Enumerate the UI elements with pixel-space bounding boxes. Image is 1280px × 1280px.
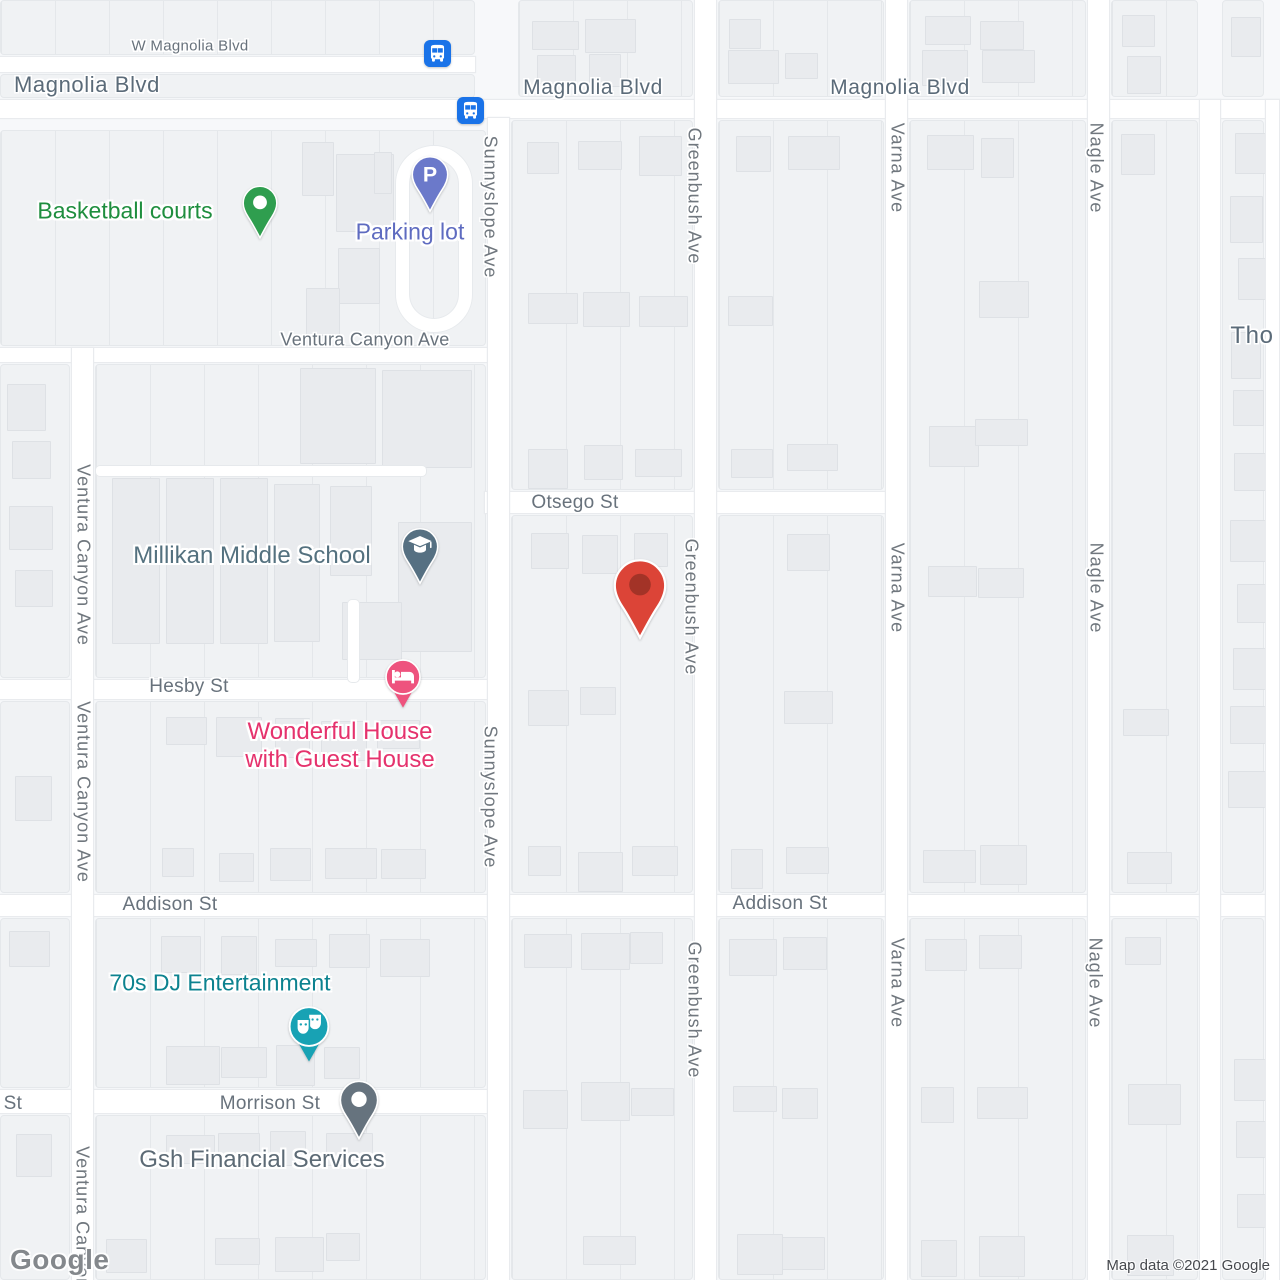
school-pin[interactable] — [401, 527, 439, 585]
street-label-magnolia-blvd-right: Magnolia Blvd — [830, 76, 970, 100]
building-footprint — [302, 142, 334, 196]
building-footprint — [728, 50, 779, 84]
building-footprint — [528, 293, 578, 324]
building-footprint — [927, 135, 975, 171]
building-footprint — [15, 570, 53, 607]
building-footprint — [524, 934, 572, 968]
road-sunnyslope-ave — [488, 118, 509, 1280]
building-footprint — [631, 1088, 674, 1116]
building-footprint — [326, 1233, 360, 1261]
street-label-ventura-canyon-ave-lower: Ventura Canyon Ave — [73, 701, 94, 883]
building-footprint — [979, 1236, 1025, 1276]
building-footprint — [329, 934, 370, 969]
street-label-varna-ave-south: Varna Ave — [887, 938, 908, 1028]
building-footprint — [528, 846, 561, 876]
road-w-magnolia-blvd — [0, 57, 475, 72]
city-block — [1111, 120, 1198, 893]
building-footprint — [585, 19, 636, 53]
building-footprint — [581, 933, 630, 970]
building-footprint — [528, 690, 570, 726]
building-footprint — [733, 1086, 778, 1112]
building-footprint — [782, 1088, 818, 1120]
street-label-otsego-st: Otsego St — [531, 492, 618, 514]
building-footprint — [635, 449, 682, 477]
building-footprint — [578, 141, 622, 170]
building-footprint — [531, 533, 569, 569]
bus-stop-south-icon — [457, 97, 484, 124]
google-logo[interactable]: Google — [10, 1244, 109, 1276]
street-label-ventura-canyon-ave-horizontal: Ventura Canyon Ave — [280, 330, 449, 351]
basketball-courts-pin[interactable] — [242, 184, 278, 240]
building-footprint — [583, 292, 630, 327]
entertainment-pin-icon — [286, 1006, 332, 1063]
building-footprint — [788, 136, 840, 170]
building-footprint — [785, 53, 818, 80]
building-footprint — [1123, 709, 1169, 736]
street-label-addison-st-east: Addison St — [733, 893, 828, 915]
street-label-nagle-ave-south: Nagle Ave — [1085, 938, 1106, 1029]
street-label-sunnyslope-ave-south: Sunnyslope Ave — [480, 726, 501, 869]
road-far-right-street — [1266, 100, 1279, 1280]
building-footprint — [921, 1087, 955, 1123]
building-footprint — [731, 849, 764, 889]
building-footprint — [166, 717, 207, 746]
building-footprint — [15, 776, 51, 821]
building-footprint — [980, 845, 1027, 885]
building-footprint — [9, 506, 54, 549]
building-footprint — [12, 441, 51, 478]
street-label-thornton-partial: Tho — [1230, 322, 1273, 350]
building-footprint — [215, 1238, 259, 1266]
street-label-greenbush-ave-mid: Greenbush Ave — [681, 539, 702, 676]
entertainment-pin[interactable] — [286, 1006, 332, 1063]
street-label-magnolia-blvd-center: Magnolia Blvd — [523, 76, 663, 100]
poi-label-line: Wonderful House — [245, 718, 434, 746]
gsh-pin[interactable] — [339, 1080, 379, 1140]
building-footprint — [982, 50, 1035, 83]
building-footprint — [737, 1234, 783, 1274]
building-footprint — [270, 848, 312, 881]
street-label-greenbush-ave-north: Greenbush Ave — [684, 128, 705, 265]
building-footprint — [1127, 56, 1161, 94]
building-footprint — [580, 687, 616, 715]
building-footprint — [338, 248, 380, 304]
building-footprint — [7, 384, 45, 431]
building-footprint — [16, 1134, 52, 1177]
basketball-courts-pin-icon — [242, 184, 278, 240]
building-footprint — [381, 849, 426, 879]
poi-label-basketball-courts[interactable]: Basketball courts — [37, 198, 212, 225]
street-label-morrison-st: Morrison St — [220, 1093, 320, 1115]
street-label-nagle-ave-mid: Nagle Ave — [1086, 543, 1107, 634]
building-footprint — [736, 136, 771, 173]
destination-pin[interactable] — [613, 557, 667, 641]
building-footprint — [980, 21, 1023, 50]
street-label-addison-st-west: Addison St — [123, 894, 218, 916]
poi-label-line: with Guest House — [245, 746, 434, 774]
building-footprint — [921, 1240, 957, 1277]
building-footprint — [166, 1046, 220, 1085]
building-footprint — [928, 566, 977, 597]
building-footprint — [1236, 1121, 1266, 1159]
building-footprint — [925, 939, 967, 971]
poi-label-line: Parking lot — [356, 219, 465, 246]
poi-label-wonderful-house[interactable]: Wonderful Housewith Guest House — [245, 718, 434, 774]
road-right-street — [1200, 100, 1220, 1280]
building-footprint — [1234, 1059, 1268, 1101]
building-footprint — [382, 370, 472, 468]
poi-label-gsh-financial[interactable]: Gsh Financial Services — [139, 1146, 384, 1174]
building-footprint — [787, 534, 830, 571]
school-driveway — [96, 466, 426, 476]
poi-label-line: Basketball courts — [37, 198, 212, 225]
building-footprint — [1122, 15, 1154, 47]
map-canvas[interactable]: W Magnolia BlvdMagnolia BlvdMagnolia Blv… — [0, 0, 1280, 1280]
school-driveway-south — [348, 600, 359, 682]
building-footprint — [219, 853, 255, 882]
building-footprint — [729, 939, 778, 976]
building-footprint — [584, 445, 623, 480]
street-label-w-magnolia-blvd: W Magnolia Blvd — [131, 38, 248, 55]
poi-label-parking-lot[interactable]: Parking lot — [356, 219, 465, 246]
bus-stop-south[interactable] — [457, 97, 484, 124]
building-footprint — [106, 1239, 147, 1273]
building-footprint — [632, 846, 678, 876]
building-footprint — [300, 368, 376, 464]
map-attribution: Map data ©2021 Google — [1106, 1257, 1270, 1274]
building-footprint — [1121, 134, 1155, 175]
building-footprint — [528, 449, 569, 489]
building-footprint — [1233, 390, 1264, 427]
building-footprint — [979, 935, 1021, 969]
building-footprint — [979, 281, 1030, 318]
building-footprint — [1125, 937, 1161, 965]
building-footprint — [1228, 771, 1268, 807]
building-footprint — [162, 848, 195, 878]
building-footprint — [639, 296, 688, 327]
poi-label-line: 70s DJ Entertainment — [109, 970, 330, 997]
bus-stop-north-icon — [424, 40, 451, 67]
street-label-varna-ave-mid: Varna Ave — [887, 543, 908, 633]
building-footprint — [786, 847, 829, 874]
building-footprint — [630, 932, 663, 963]
destination-pin-icon — [613, 557, 667, 641]
building-footprint — [221, 1047, 266, 1079]
building-footprint — [1230, 196, 1263, 244]
building-footprint — [380, 939, 431, 977]
svg-text:P: P — [423, 162, 437, 186]
lodging-pin-icon — [383, 659, 423, 709]
building-footprint — [523, 1090, 568, 1129]
street-label-morrison-st-cut: Morrison St — [0, 1093, 22, 1115]
building-footprint — [527, 142, 559, 174]
building-footprint — [923, 850, 976, 883]
building-footprint — [374, 152, 392, 194]
building-footprint — [1231, 17, 1261, 57]
building-footprint — [639, 136, 682, 176]
building-footprint — [161, 936, 201, 973]
poi-label-millikan-middle-school[interactable]: Millikan Middle School — [133, 542, 370, 570]
building-footprint — [729, 19, 762, 49]
building-footprint — [325, 848, 377, 879]
building-footprint — [532, 21, 579, 50]
building-footprint — [925, 16, 971, 45]
building-footprint — [783, 937, 827, 971]
building-footprint — [728, 296, 773, 327]
building-footprint — [975, 419, 1029, 446]
building-footprint — [275, 939, 317, 967]
building-footprint — [731, 449, 773, 478]
street-label-greenbush-ave-south: Greenbush Ave — [684, 942, 705, 1079]
building-footprint — [583, 1236, 636, 1265]
building-footprint — [578, 852, 624, 893]
building-footprint — [1128, 1084, 1180, 1125]
poi-label-line: Gsh Financial Services — [139, 1146, 384, 1174]
building-footprint — [581, 1082, 629, 1121]
building-footprint — [9, 931, 50, 967]
building-footprint — [787, 444, 838, 471]
building-footprint — [929, 426, 979, 467]
poi-label-line: Millikan Middle School — [133, 542, 370, 570]
street-label-nagle-ave-north: Nagle Ave — [1086, 123, 1107, 214]
street-label-magnolia-blvd-left: Magnolia Blvd — [14, 72, 160, 98]
city-block — [909, 120, 1086, 893]
building-footprint — [978, 568, 1024, 598]
parking-lot-pin-icon: P — [411, 155, 449, 213]
building-footprint — [981, 138, 1013, 179]
street-label-hesby-st: Hesby St — [149, 676, 229, 698]
gsh-pin-icon — [339, 1080, 379, 1140]
building-footprint — [784, 691, 833, 724]
parking-lot-pin[interactable]: P — [411, 155, 449, 213]
street-label-sunnyslope-ave-north: Sunnyslope Ave — [480, 136, 501, 279]
poi-label-dj-entertainment[interactable]: 70s DJ Entertainment — [109, 970, 330, 997]
building-footprint — [977, 1087, 1027, 1119]
building-footprint — [1127, 852, 1172, 885]
bus-stop-north[interactable] — [424, 40, 451, 67]
street-label-varna-ave-north: Varna Ave — [887, 123, 908, 213]
lodging-pin[interactable] — [383, 659, 423, 709]
building-footprint — [275, 1237, 325, 1272]
street-label-ventura-canyon-ave-upper: Ventura Canyon Ave — [73, 464, 94, 646]
building-footprint — [782, 1237, 825, 1270]
school-pin-icon — [401, 527, 439, 585]
